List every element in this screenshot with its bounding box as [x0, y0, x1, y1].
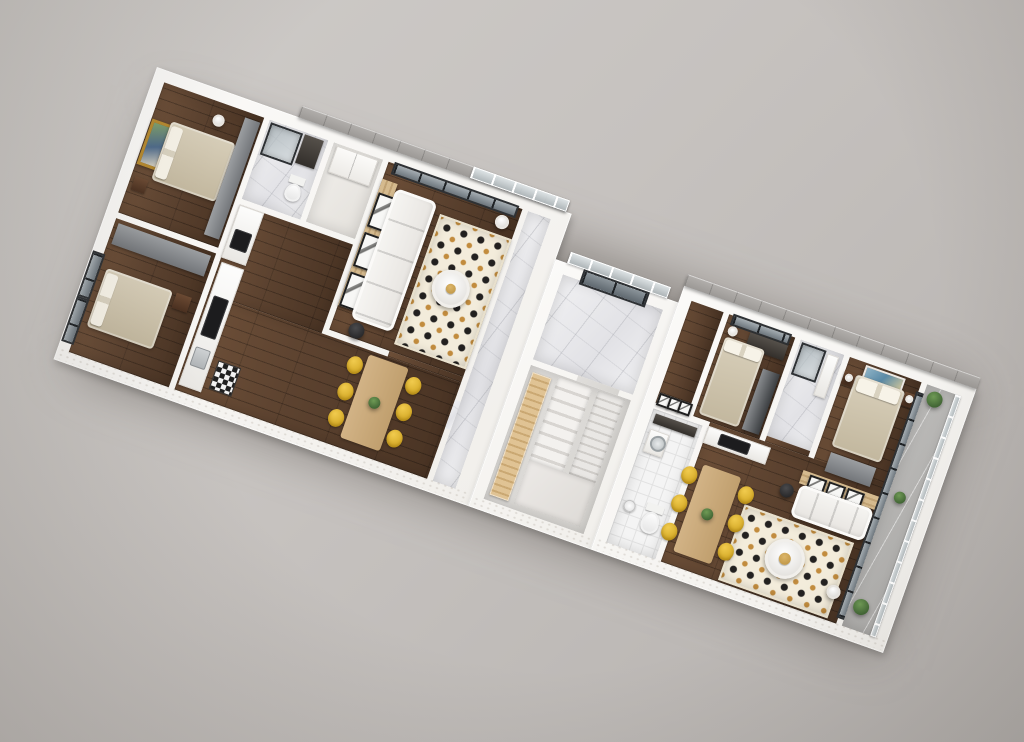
floor-plan	[53, 67, 986, 653]
render-stage	[0, 0, 1024, 742]
